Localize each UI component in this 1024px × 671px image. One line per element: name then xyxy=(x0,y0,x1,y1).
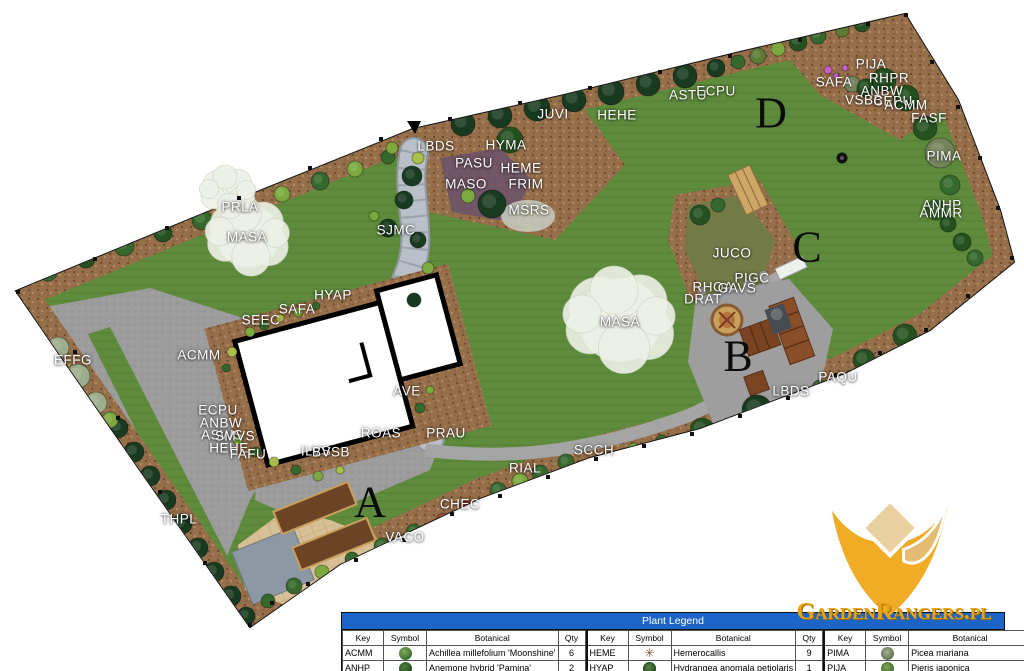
legend-botanical: Picea mariana xyxy=(909,646,1024,661)
legend-column-header: Symbol xyxy=(628,631,671,646)
pija-symbol-icon xyxy=(881,662,894,671)
legend-botanical: Hemerocallis xyxy=(671,646,796,661)
legend-column-header: Botanical xyxy=(427,631,559,646)
garden-plan-page: PRLAMASASJMCLBDSHYMAPASUMASOHEMEFRIMMSRS… xyxy=(0,0,1024,671)
legend-column-header: Key xyxy=(824,631,866,646)
plant-label-vaco: VACO xyxy=(385,530,424,545)
legend-row: HEME✳Hemerocallis9 xyxy=(587,646,823,661)
legend-row: ACMMAchillea millefolium 'Moonshine'6 xyxy=(343,646,586,661)
legend-key: PIJA xyxy=(824,661,866,671)
legend-column-header: Qty xyxy=(558,631,585,646)
legend-botanical: Pieris japonica xyxy=(909,661,1024,671)
plant-label-pima: PIMA xyxy=(926,149,961,164)
plant-label-juco: JUCO xyxy=(713,246,752,261)
legend-qty: 6 xyxy=(558,646,585,661)
legend-key: ACMM xyxy=(343,646,384,661)
plant-label-bvsb: BVSB xyxy=(312,445,350,460)
plant-label-masa: MASA xyxy=(227,230,267,245)
plant-label-effg: EFFG xyxy=(54,353,92,368)
hyap-symbol-icon xyxy=(643,662,656,671)
acmm-symbol-icon xyxy=(399,647,412,660)
legend-column-header: Qty xyxy=(796,631,823,646)
legend-column-header: Symbol xyxy=(866,631,909,646)
plant-label-hehe: HEHE xyxy=(597,108,637,123)
legend-key: HEME xyxy=(587,646,629,661)
legend-column-header: Symbol xyxy=(384,631,427,646)
legend-row: ANHPAnemone hybrid 'Pamina'2 xyxy=(343,661,586,671)
legend-qty: 1 xyxy=(796,661,823,671)
plant-label-juvi: JUVI xyxy=(537,107,568,122)
plant-label-prla: PRLA xyxy=(221,200,258,215)
anhp-symbol-icon xyxy=(399,662,412,671)
legend-group: KeySymbolBotanicalQtyHEME✳Hemerocallis9H… xyxy=(586,630,824,671)
plant-label-sjmc: SJMC xyxy=(377,223,416,238)
pima-symbol-icon xyxy=(881,647,894,660)
legend-group: KeySymbolBotanicalQtyPIMAPicea mariana3P… xyxy=(823,630,1024,671)
plant-label-lbds: LBDS xyxy=(417,139,454,154)
legend-row: PIMAPicea mariana3 xyxy=(824,646,1024,661)
heme-symbol-icon: ✳ xyxy=(644,647,654,660)
plant-label-rial: RIAL xyxy=(509,461,541,476)
plant-label-prau: PRAU xyxy=(426,426,466,441)
legend-column-header: Botanical xyxy=(671,631,796,646)
legend-row: PIJAPieris japonica1 xyxy=(824,661,1024,671)
plant-label-lbds: LBDS xyxy=(772,384,809,399)
plant-label-safa: SAFA xyxy=(279,302,316,317)
plant-label-maso: MASO xyxy=(445,177,487,192)
legend-column-header: Key xyxy=(587,631,629,646)
legend-key: ANHP xyxy=(343,661,384,671)
zone-letter-b: B xyxy=(723,331,752,382)
legend-botanical: Hydrangea anomala petiolaris xyxy=(671,661,796,671)
plant-label-gavs: GAVS xyxy=(718,281,757,296)
plant-label-masa: MASA xyxy=(600,315,640,330)
plant-label-fasf: FASF xyxy=(911,111,947,126)
plant-label-roas: ROAS xyxy=(361,426,401,441)
zone-letter-a: A xyxy=(354,477,386,528)
plant-label-fafu: FAFU xyxy=(230,447,267,462)
plant-label-seec: SEEC xyxy=(242,313,281,328)
plant-label-heme: HEME xyxy=(500,161,541,176)
legend-botanical: Achillea millefolium 'Moonshine' xyxy=(427,646,559,661)
plant-label-pija: PIJA xyxy=(856,57,887,72)
plant-label-safa: SAFA xyxy=(816,75,853,90)
legend-botanical: Anemone hybrid 'Pamina' xyxy=(427,661,559,671)
plant-label-hyap: HYAP xyxy=(314,288,352,303)
legend-qty: 2 xyxy=(558,661,585,671)
legend-group: KeySymbolBotanicalQtyACMMAchillea millef… xyxy=(342,630,586,671)
plant-label-drat: DRAT xyxy=(684,292,722,307)
gardenrangers-logo-text: GardenRangers.pl xyxy=(768,599,1020,626)
plant-label-frim: FRIM xyxy=(509,177,544,192)
plant-label-acmm: ACMM xyxy=(177,348,220,363)
plant-label-msrs: MSRS xyxy=(508,203,549,218)
legend-column-header: Key xyxy=(343,631,384,646)
plant-label-ecpu: ECPU xyxy=(696,84,736,99)
plant-label-ave: AVE xyxy=(393,384,421,399)
legend-column-header: Botanical xyxy=(909,631,1024,646)
plant-label-paqu: PAQU xyxy=(818,370,857,385)
plant-label-hyma: HYMA xyxy=(485,138,526,153)
plant-label-scch: SCCH xyxy=(574,443,614,458)
zone-letter-c: C xyxy=(792,222,821,273)
plant-label-ammr: AMMR xyxy=(919,206,962,221)
zone-letter-d: D xyxy=(755,88,787,139)
plant-label-thpl: THPL xyxy=(161,512,198,527)
legend-key: HYAP xyxy=(587,661,629,671)
legend-key: PIMA xyxy=(824,646,866,661)
legend-qty: 9 xyxy=(796,646,823,661)
plant-label-chec: CHEC xyxy=(440,497,480,512)
legend-row: HYAPHydrangea anomala petiolaris1 xyxy=(587,661,823,671)
plant-label-pasu: PASU xyxy=(455,156,493,171)
